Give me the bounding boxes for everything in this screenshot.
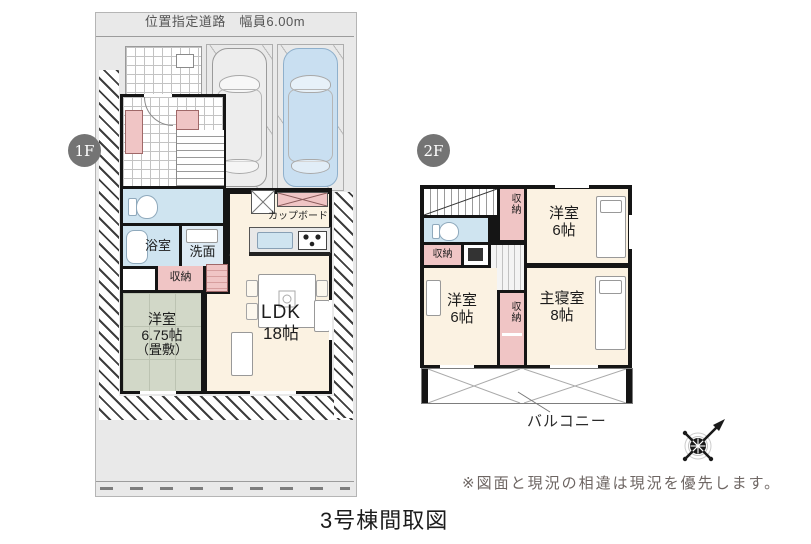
stairs-1f (176, 130, 224, 186)
hatch-band-right (334, 192, 353, 418)
floor2-badge-text: 2F (424, 142, 444, 160)
master-bedroom-label: 主寝室 8帖 (529, 290, 595, 325)
west-a-line2: 6帖 (533, 222, 595, 239)
floorplan-page: 位置指定道路 幅員6.00m 浴室 洗面 収 (0, 0, 811, 544)
hall-nook (123, 269, 155, 290)
storage-2f-center-label: 収納 (507, 301, 522, 323)
west-room-a-label: 洋室 6帖 (533, 205, 595, 240)
window-gap (140, 391, 176, 394)
stairs-2f-diagonal (424, 189, 497, 215)
west-room-a: 洋室 6帖 (527, 189, 628, 263)
window-gap (329, 300, 332, 340)
road-divider-line (96, 36, 354, 37)
ldk-label: LDK 18帖 (236, 302, 326, 343)
balcony-post (422, 369, 428, 403)
storage-2f-center: 収納 (500, 293, 524, 365)
cupboard (277, 192, 328, 207)
chair (246, 280, 258, 297)
west-a-line1: 洋室 (533, 205, 595, 222)
site-boundary-marks (100, 487, 350, 490)
west-room-b-label: 洋室 6帖 (432, 292, 492, 327)
fixture-2f (468, 248, 483, 261)
hall-storage (176, 110, 199, 130)
hall-closet (125, 110, 143, 154)
master-line1: 主寝室 (529, 290, 595, 307)
balcony-label: バルコニー (527, 410, 607, 431)
road-label: 位置指定道路 幅員6.00m (95, 15, 355, 30)
pillow-icon (599, 280, 622, 294)
washroom: 洗面 (182, 226, 223, 266)
car-rear-window (291, 159, 330, 174)
toilet-icon (439, 222, 459, 241)
window-gap (629, 215, 632, 249)
kitchen-counter (249, 227, 331, 253)
car-cabin (288, 89, 333, 162)
tatami-room-label: 洋室 6.75帖 （畳敷） (123, 311, 201, 358)
storage-2f-top-label: 収納 (507, 193, 522, 215)
storage-1f-label: 収納 (158, 271, 203, 284)
bathroom: 浴室 (123, 226, 179, 266)
storage-1f: 収納 (158, 266, 203, 290)
vanity-icon (186, 229, 218, 243)
hatch-band-left (99, 70, 119, 420)
tatami-line1: 洋室 (123, 311, 201, 327)
tatami-line3: （畳敷） (123, 343, 201, 358)
washroom-label: 洗面 (182, 245, 223, 260)
hatch-band-bottom (99, 396, 353, 420)
bathroom-label: 浴室 (137, 239, 179, 254)
pantry-shelf (206, 264, 228, 292)
floor2-badge: 2F (417, 134, 450, 167)
counter-front-edge (249, 252, 330, 256)
west-b-line2: 6帖 (432, 309, 492, 326)
toilet-room-1f (123, 189, 223, 223)
tatami-room: 洋室 6.75帖 （畳敷） (123, 293, 201, 391)
toilet-icon (136, 195, 158, 219)
window-gap (555, 185, 589, 188)
disclaimer-text: ※図面と現況の相違は現況を優先します。 (462, 472, 781, 493)
west-room-b: 洋室 6帖 (424, 268, 497, 365)
floor1-badge: 1F (68, 134, 101, 167)
cupboard-label: カップボード (256, 207, 328, 222)
compass-icon (668, 412, 732, 476)
ldk-line1: LDK (236, 302, 326, 324)
west-b-line1: 洋室 (432, 292, 492, 309)
storage-2f-top: 収納 (500, 189, 524, 240)
shelf-line (502, 333, 522, 336)
bed-icon (596, 196, 626, 258)
storage-2f-left: 収納 (424, 245, 461, 265)
master-bedroom: 主寝室 8帖 (527, 268, 628, 365)
pillow-icon (600, 200, 622, 213)
ldk-line2: 18帖 (236, 324, 326, 344)
counter-2f (464, 245, 488, 265)
chair (316, 280, 328, 297)
toilet-room-2f (424, 218, 488, 242)
tatami-line2: 6.75帖 (123, 327, 201, 343)
floor1-badge-text: 1F (75, 142, 95, 160)
bed-icon (595, 276, 626, 350)
site-boundary-line (96, 481, 354, 482)
storage-2f-left-label: 収納 (424, 249, 461, 261)
balcony-post (626, 369, 632, 403)
stove (298, 231, 327, 250)
kitchen-sink (257, 232, 293, 249)
car-blue (283, 48, 338, 187)
page-title: 3号棟間取図 (320, 503, 448, 535)
doormat (176, 54, 194, 68)
master-line2: 8帖 (529, 307, 595, 324)
window-gap (250, 391, 296, 394)
